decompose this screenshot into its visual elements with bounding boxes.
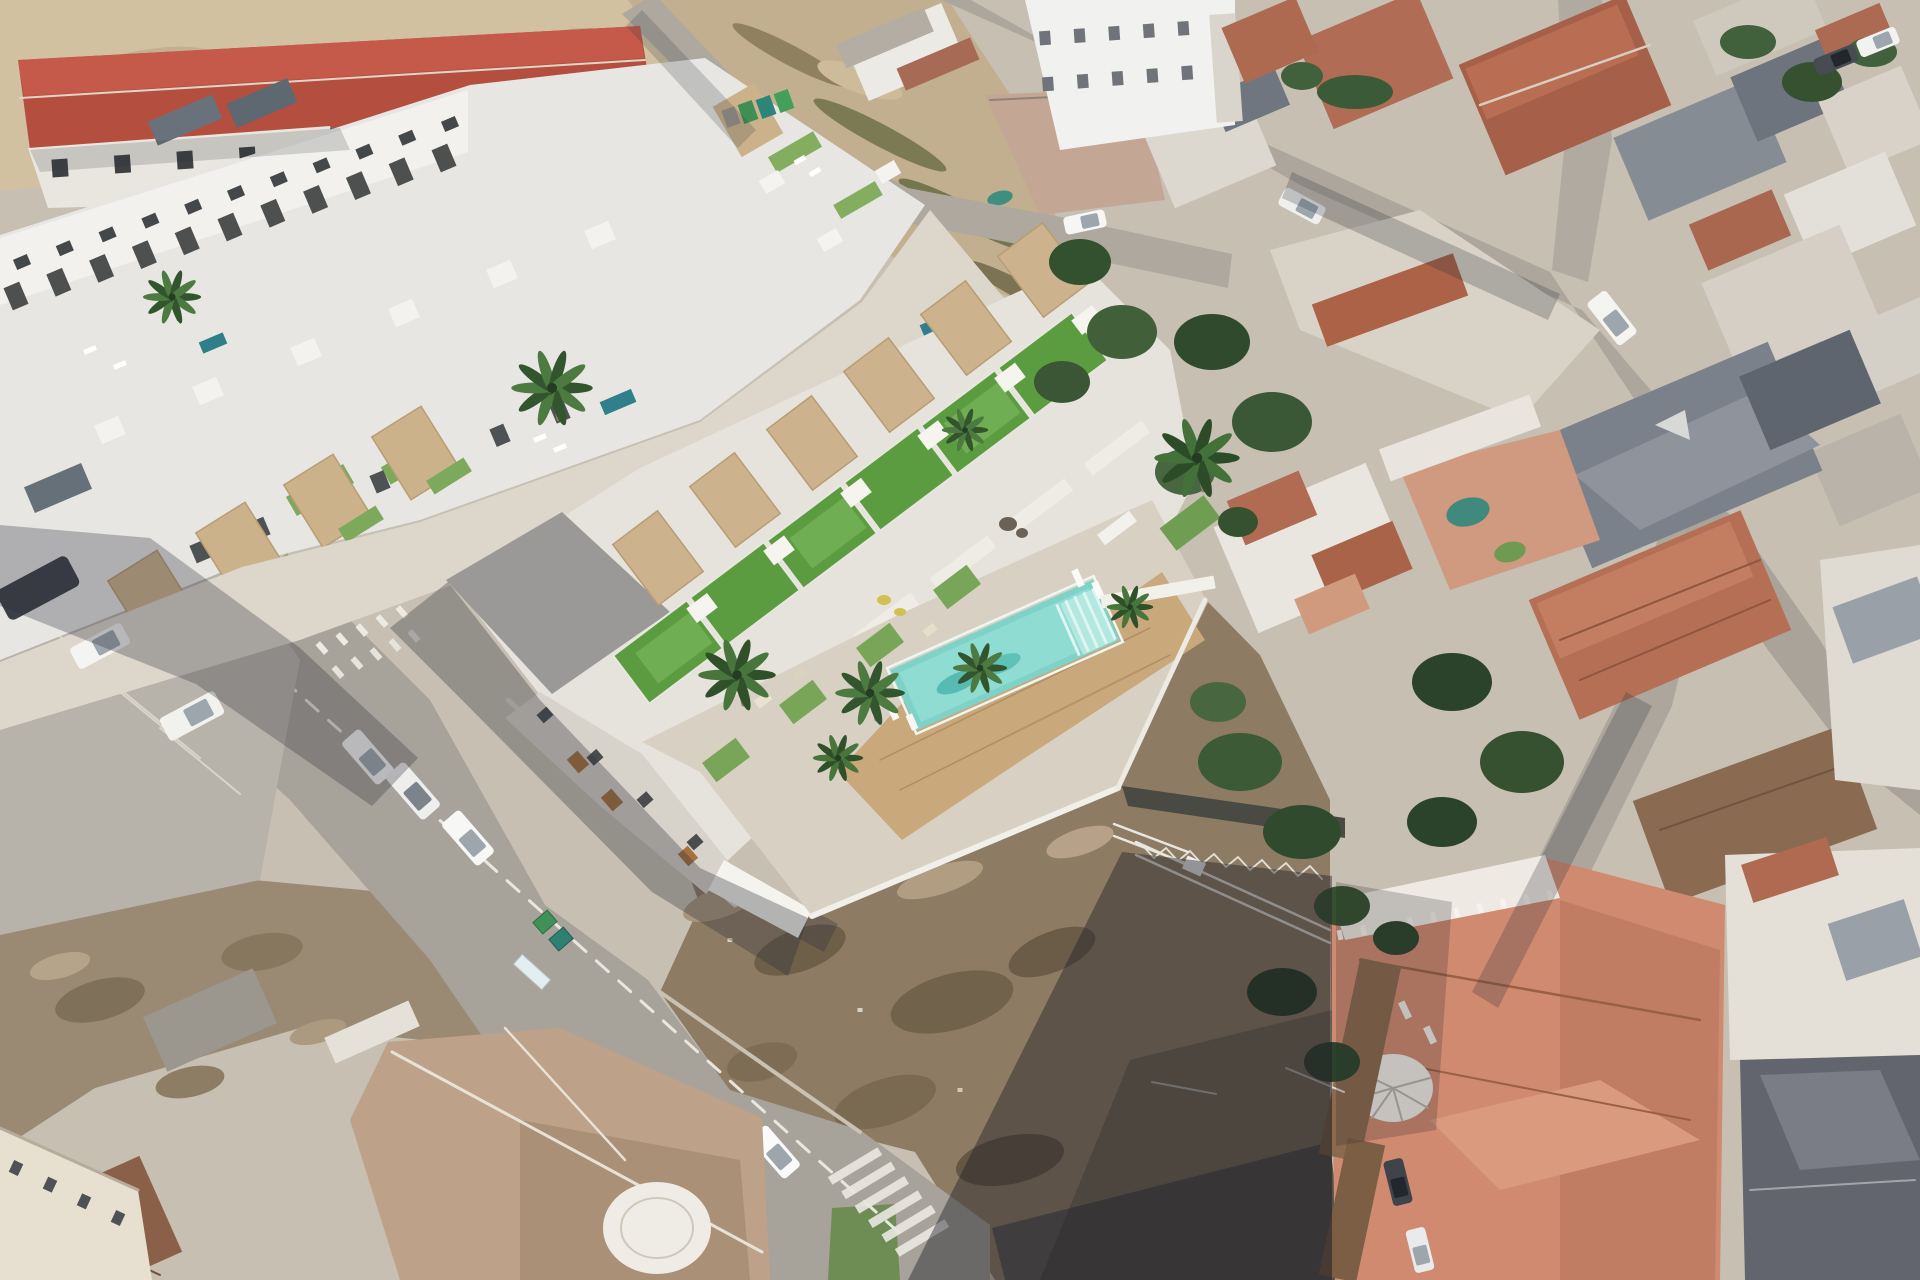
- screenshot-root: [0, 0, 1920, 1280]
- palm-tree-crown: [835, 755, 841, 761]
- tree: [1087, 305, 1157, 359]
- tree: [1480, 731, 1564, 793]
- hedge: [1281, 62, 1323, 90]
- palm-tree-crown: [962, 427, 968, 433]
- tree: [1049, 239, 1111, 285]
- balcony-tower-white: [603, 1182, 711, 1274]
- tower-window: [1146, 68, 1158, 83]
- tree: [1263, 805, 1341, 859]
- tower-window: [1177, 21, 1189, 36]
- parasol-yellow: [877, 595, 891, 605]
- tree: [1412, 653, 1492, 711]
- tree: [1407, 797, 1477, 847]
- trash-speck: [958, 1088, 963, 1092]
- palm-tree-crown: [168, 293, 175, 300]
- tower-window: [1181, 65, 1193, 80]
- palm-tree-crown: [547, 383, 557, 393]
- palm-tree-crown: [1127, 604, 1133, 610]
- palm-tree-crown: [977, 665, 984, 672]
- palm-tree-crown: [866, 689, 875, 698]
- trash-speck: [858, 1008, 863, 1012]
- apartment-tower-white: [1025, 0, 1235, 150]
- tower-window: [1108, 26, 1120, 41]
- tree: [1190, 682, 1246, 722]
- shadow-salmon-left: [1336, 882, 1452, 1146]
- palm-tree-crown: [732, 670, 742, 680]
- tower-window: [1112, 71, 1124, 86]
- tower-window: [1042, 77, 1054, 92]
- tree: [1198, 733, 1282, 791]
- tower-window: [1077, 74, 1089, 89]
- tree: [1232, 392, 1312, 452]
- palm-tree-crown: [1192, 453, 1203, 464]
- tower-window: [1039, 31, 1051, 46]
- patio-table-set: [1016, 528, 1028, 538]
- tower-window: [1143, 23, 1155, 38]
- aerial-render-image: [0, 0, 1920, 1280]
- patio-table-set: [999, 517, 1017, 531]
- hedge: [1317, 75, 1393, 109]
- tree: [1720, 25, 1776, 59]
- tree: [1174, 314, 1250, 370]
- tree: [1218, 507, 1258, 537]
- parasol-yellow: [894, 608, 906, 616]
- tower-window: [1074, 28, 1086, 43]
- tree: [1034, 361, 1090, 403]
